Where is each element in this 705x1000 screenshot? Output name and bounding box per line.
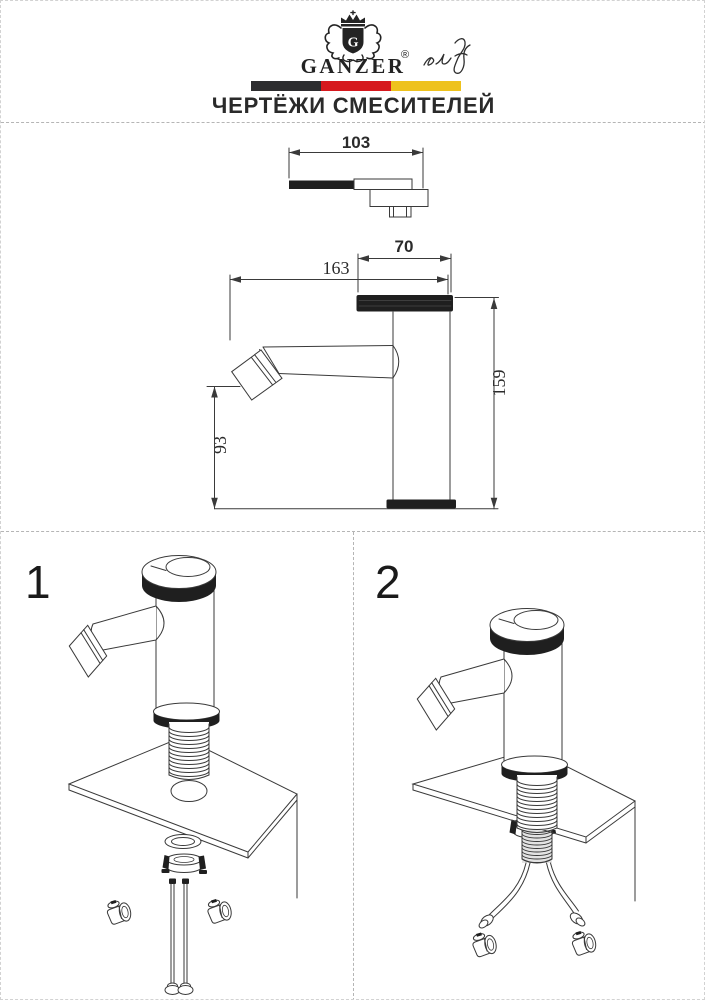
figure-1-number: 1 [25,556,51,608]
brand-logo: G GANZER ® [1,1,705,81]
dim-93-label: 93 [210,436,230,454]
page-title: ЧЕРТЁЖИ СМЕСИТЕЛЕЙ [1,93,705,119]
flag-yellow-segment [391,81,461,91]
mounting-nut-1 [162,854,208,874]
registered-trademark: ® [401,49,409,61]
dim-103-label: 103 [342,133,370,152]
installation-figures: 1 [1,532,705,1000]
dim-93: 93 [207,387,240,509]
figure-2: 2 [375,556,635,957]
drawing-sheet: G GANZER ® ЧЕРТЁЖИ СМЕСИТЕЛЕЙ [0,0,705,1000]
dim-159-label: 159 [489,370,509,397]
shield: G [343,28,364,54]
header: G GANZER ® ЧЕРТЁЖИ СМЕСИТЕЛЕЙ [1,1,705,122]
angle-valve-left-1 [107,900,132,924]
logo-monogram: G [348,36,359,51]
supply-hoses-2 [478,863,587,930]
supply-hoses-1 [165,879,193,995]
signature [424,39,470,74]
angle-valve-right-1 [208,899,233,923]
flag-red-segment [321,81,391,91]
technical-drawing: 103 70 [1,123,705,532]
dim-163-label: 163 [323,258,350,278]
mounting-hole [171,781,207,802]
figure-1: 1 [25,556,297,995]
brand-name: GANZER [301,54,406,78]
faucet-1 [69,556,219,780]
dim-70: 70 [358,237,451,292]
knurled-base [387,500,457,509]
faucet-front-outline [215,295,499,509]
figure-2-number: 2 [375,556,401,608]
angle-valve-right-2 [572,931,597,955]
dim-70-label: 70 [395,237,414,256]
angle-valve-left-2 [473,932,498,956]
flag-black-segment [251,81,321,91]
knurled-cap [357,295,454,312]
front-view: 70 163 [207,237,509,509]
german-flag-bar [251,81,461,91]
crown-icon [341,11,365,27]
spout-top-view [289,181,354,190]
dim-159: 159 [455,298,509,509]
top-view: 103 [289,133,428,217]
rubber-washer [165,835,201,849]
